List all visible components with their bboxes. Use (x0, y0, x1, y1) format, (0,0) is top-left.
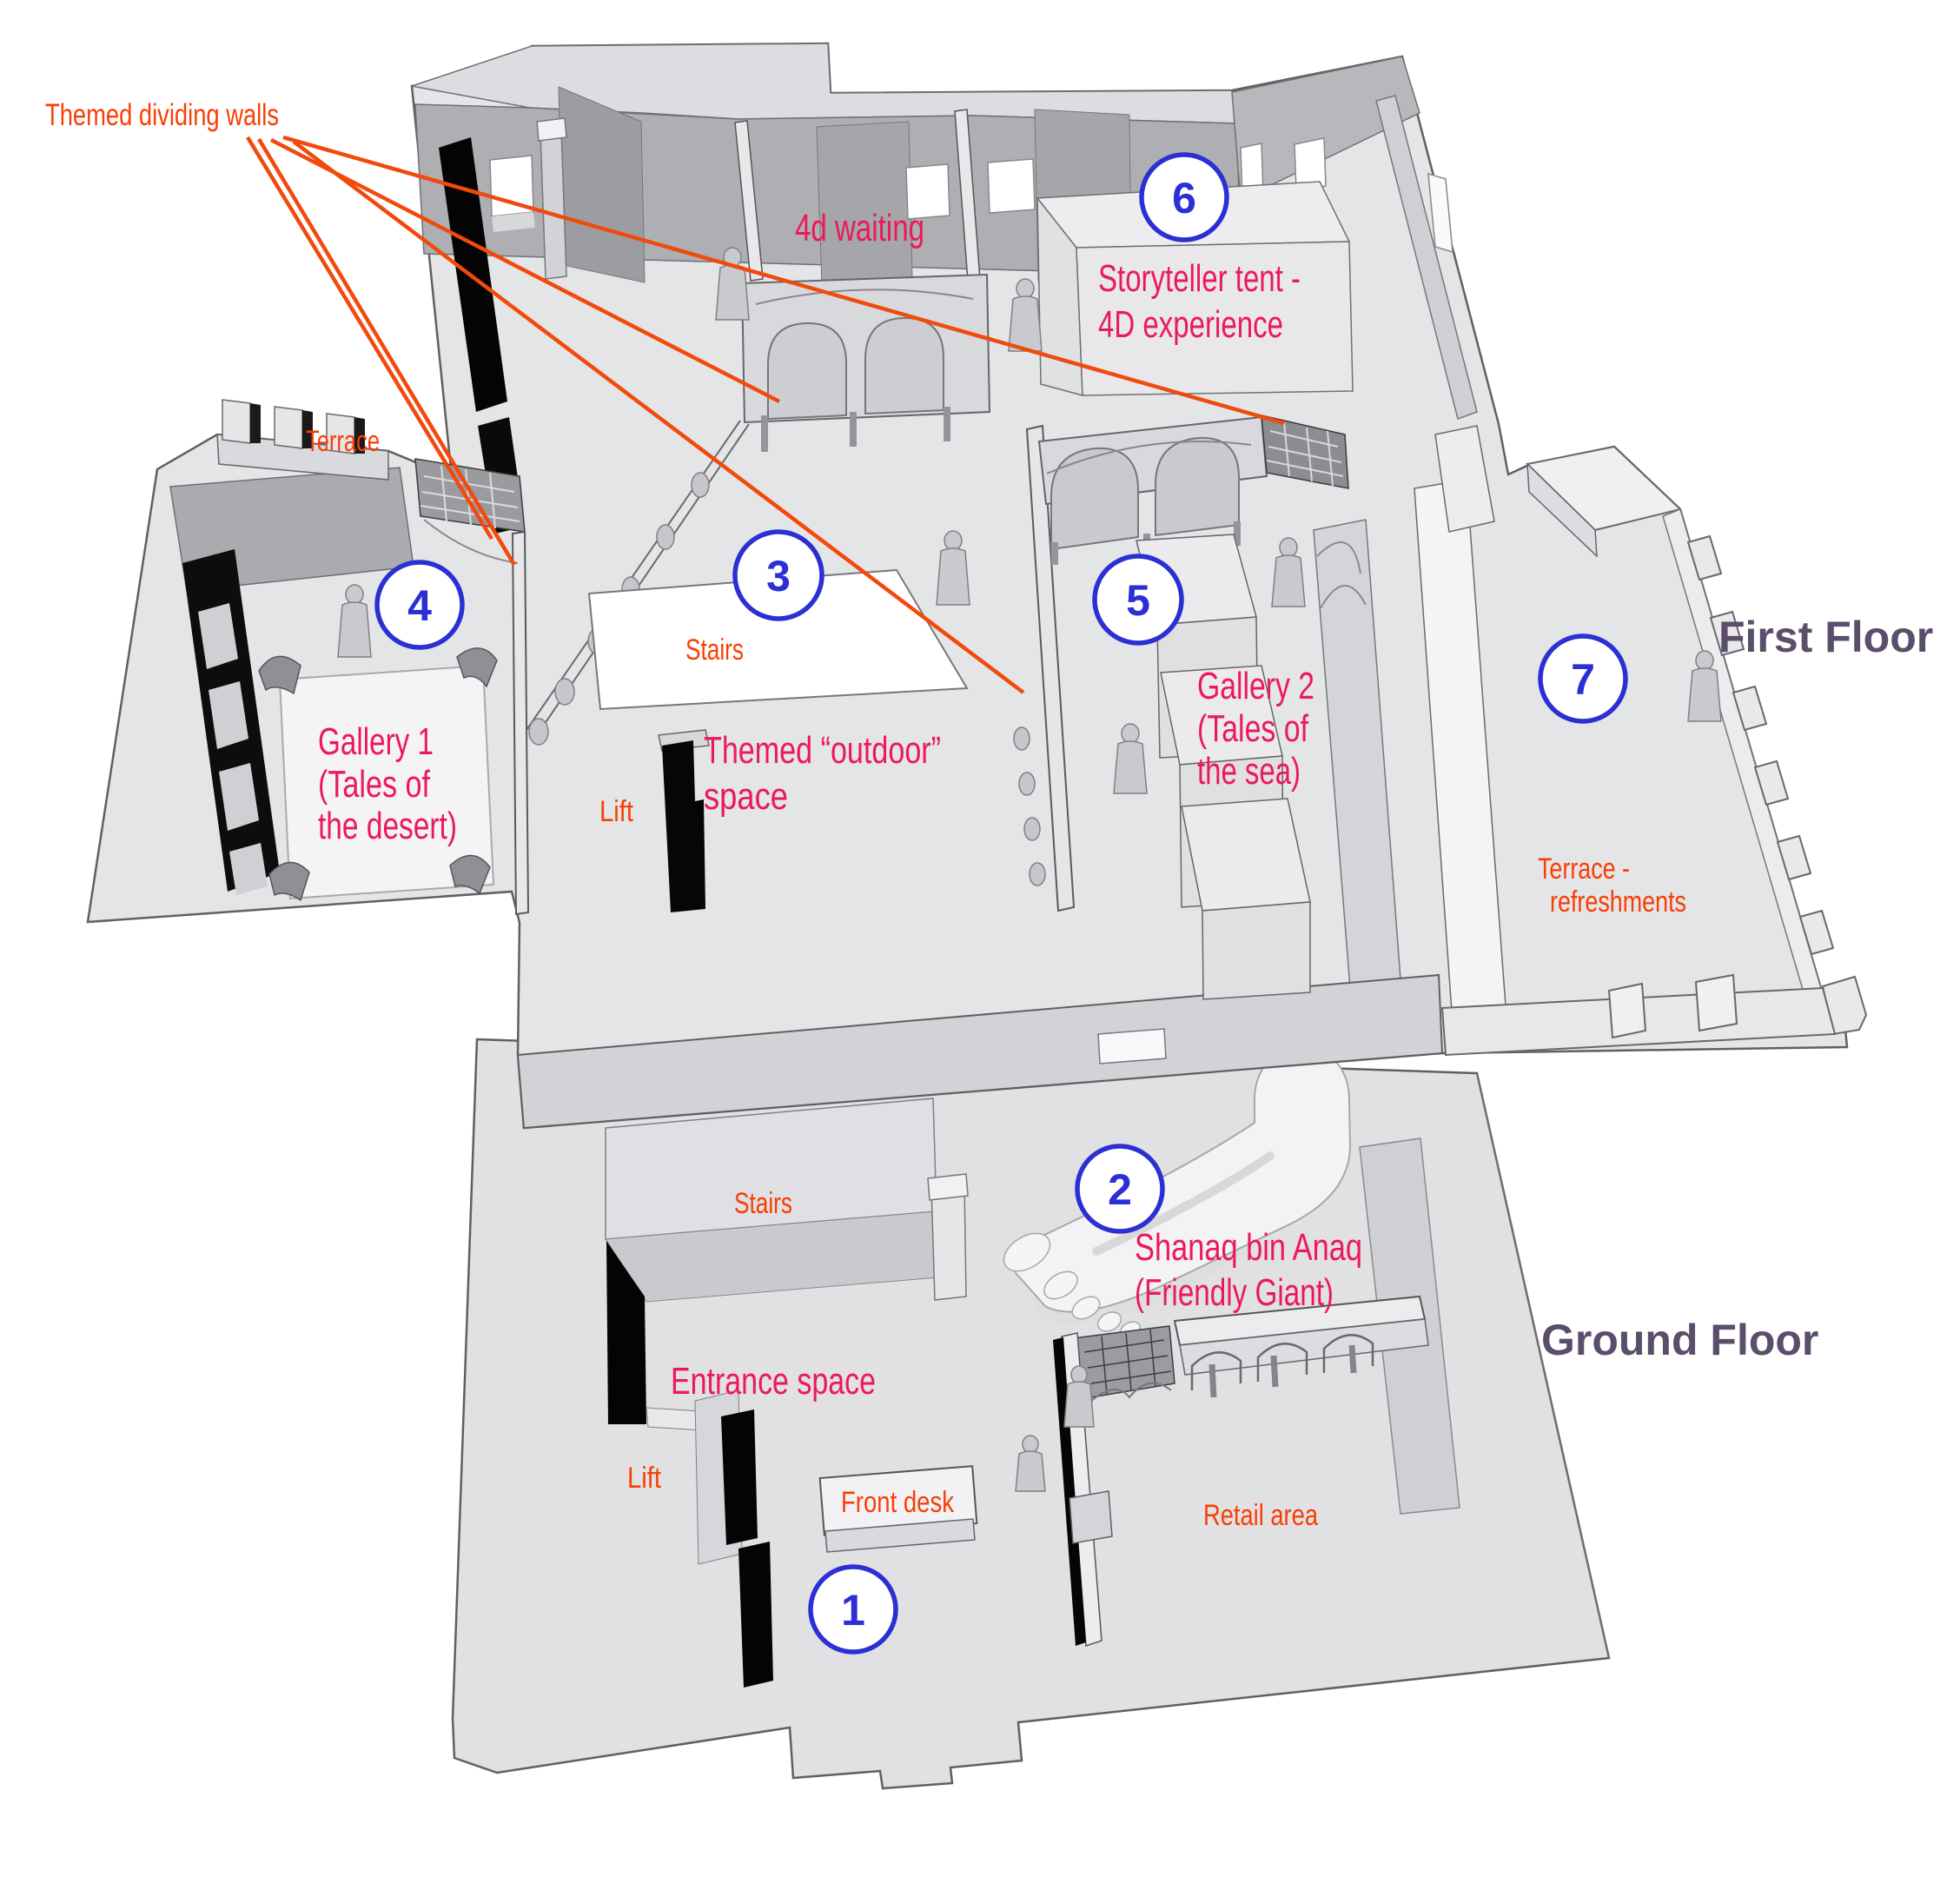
svg-text:7: 7 (1571, 655, 1595, 704)
svg-text:Lift: Lift (627, 1462, 661, 1495)
svg-text:5: 5 (1126, 576, 1150, 625)
svg-text:4: 4 (407, 581, 432, 630)
svg-text:space: space (704, 775, 788, 818)
svg-text:Lift: Lift (599, 795, 633, 828)
svg-text:Shanaq bin Anaq: Shanaq bin Anaq (1135, 1226, 1362, 1269)
svg-text:refreshments: refreshments (1550, 885, 1686, 919)
svg-text:Front desk: Front desk (841, 1486, 955, 1519)
svg-text:Retail area: Retail area (1203, 1499, 1318, 1532)
svg-text:Themed “outdoor”: Themed “outdoor” (704, 729, 941, 772)
svg-text:Stairs: Stairs (734, 1187, 792, 1220)
svg-text:Themed dividing walls: Themed dividing walls (45, 98, 279, 132)
svg-text:the sea): the sea) (1197, 750, 1301, 793)
svg-text:Storyteller tent -: Storyteller tent - (1098, 257, 1301, 300)
svg-text:Ground Floor: Ground Floor (1541, 1316, 1818, 1364)
svg-text:Stairs: Stairs (685, 633, 744, 667)
svg-text:Entrance space: Entrance space (671, 1360, 876, 1403)
svg-text:(Tales of: (Tales of (1197, 707, 1309, 750)
svg-text:(Tales of: (Tales of (318, 763, 431, 806)
svg-text:Terrace -: Terrace - (1538, 852, 1630, 885)
svg-text:the desert): the desert) (318, 805, 457, 847)
svg-text:2: 2 (1108, 1165, 1132, 1214)
svg-text:4d waiting: 4d waiting (795, 207, 924, 249)
svg-text:1: 1 (841, 1586, 865, 1635)
svg-text:6: 6 (1172, 174, 1196, 222)
svg-text:Terrace: Terrace (306, 425, 380, 458)
svg-text:First Floor: First Floor (1718, 613, 1933, 661)
svg-text:3: 3 (766, 552, 791, 600)
svg-text:(Friendly Giant): (Friendly Giant) (1135, 1271, 1334, 1314)
svg-text:4D experience: 4D experience (1098, 303, 1283, 346)
svg-text:Gallery 1: Gallery 1 (318, 720, 434, 763)
svg-text:Gallery 2: Gallery 2 (1197, 665, 1314, 707)
